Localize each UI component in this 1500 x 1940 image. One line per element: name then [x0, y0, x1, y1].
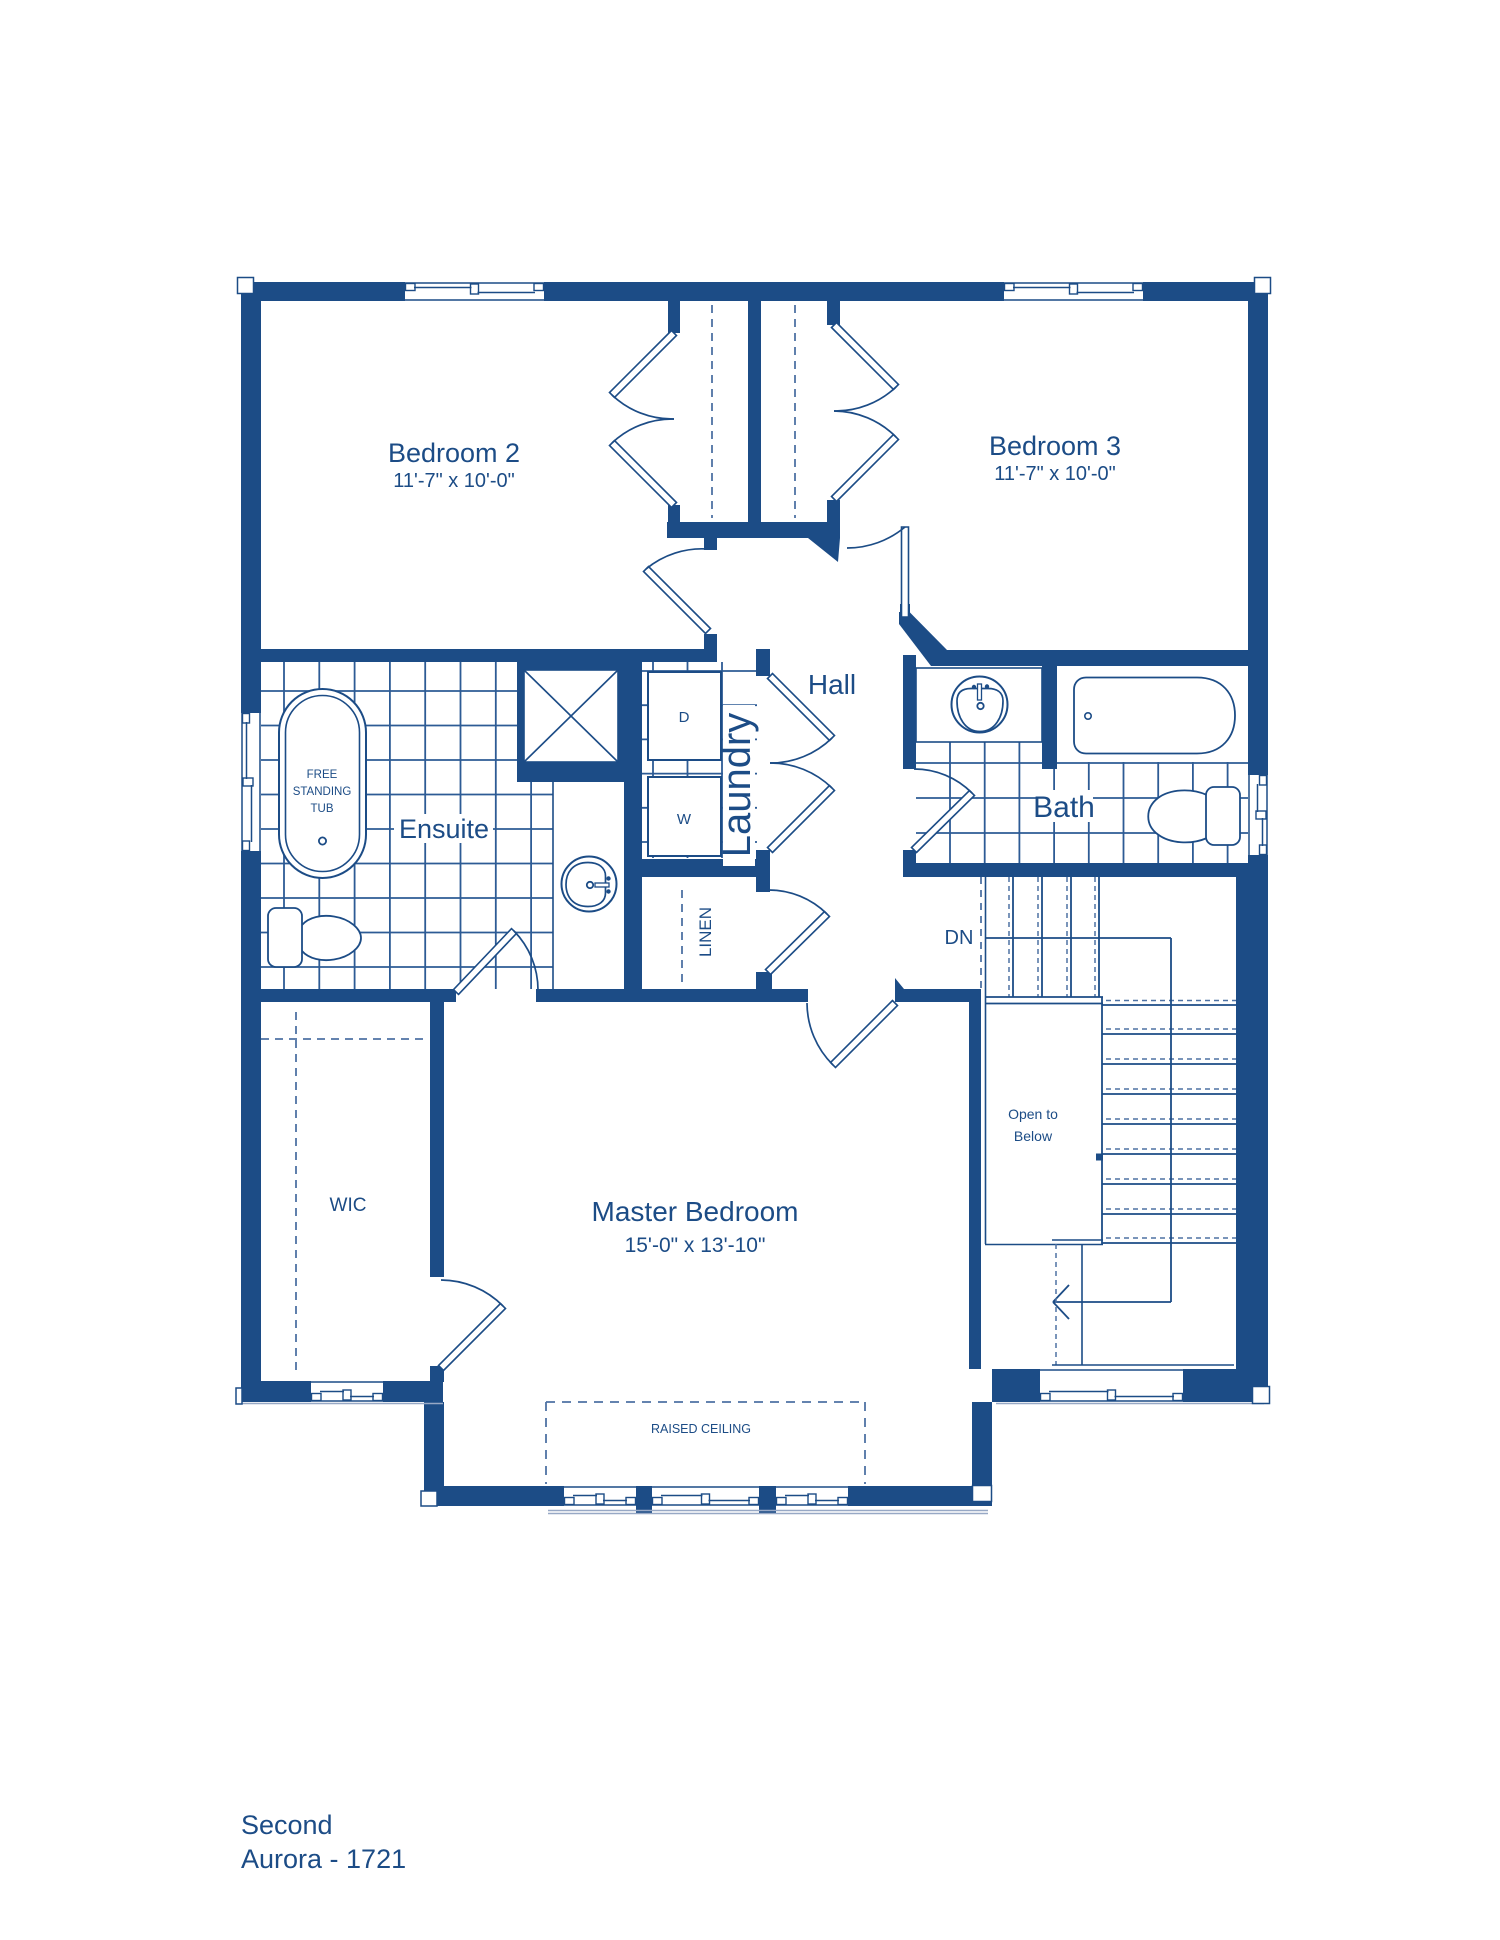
svg-text:WIC: WIC	[330, 1195, 367, 1216]
svg-text:Hall: Hall	[808, 669, 856, 700]
svg-text:11'-7" x 10'-0": 11'-7" x 10'-0"	[994, 463, 1116, 485]
svg-text:W: W	[677, 811, 692, 828]
svg-text:Second: Second	[241, 1810, 333, 1840]
svg-text:D: D	[679, 709, 690, 726]
svg-text:Laundry: Laundry	[715, 713, 759, 858]
svg-text:Bedroom 3: Bedroom 3	[989, 431, 1121, 461]
svg-text:STANDING: STANDING	[293, 786, 352, 798]
svg-text:Bath: Bath	[1033, 791, 1095, 824]
svg-text:RAISED CEILING: RAISED CEILING	[651, 1422, 751, 1436]
svg-text:Bedroom 2: Bedroom 2	[388, 438, 520, 468]
svg-text:Open to: Open to	[1008, 1106, 1058, 1122]
svg-text:DN: DN	[945, 927, 974, 949]
svg-text:15'-0" x 13'-10": 15'-0" x 13'-10"	[625, 1234, 766, 1257]
svg-text:11'-7" x 10'-0": 11'-7" x 10'-0"	[393, 470, 515, 492]
svg-text:LINEN: LINEN	[696, 907, 715, 957]
svg-text:Ensuite: Ensuite	[399, 814, 489, 844]
svg-text:Master Bedroom: Master Bedroom	[592, 1196, 799, 1227]
svg-text:TUB: TUB	[311, 803, 334, 815]
svg-text:FREE: FREE	[307, 769, 338, 781]
svg-text:Below: Below	[1014, 1128, 1053, 1144]
svg-text:Aurora - 1721: Aurora - 1721	[241, 1844, 406, 1874]
